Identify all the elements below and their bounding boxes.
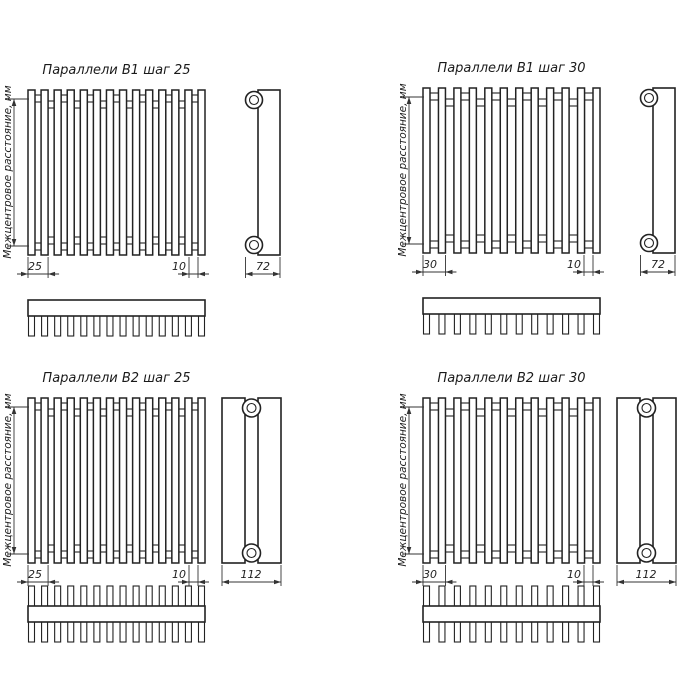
- dim-gap-label: 10: [567, 258, 581, 271]
- radiator-drawing-b1-25: 25 10 72 Межцентровое расстояние, мм: [0, 60, 320, 365]
- radiator-drawing-b2-25: 25 10 112 Межцентровое расстояние, мм: [0, 368, 320, 673]
- panel-parallels-b1-step30: Параллели В1 шаг 30 30 10 72 Межцентрово…: [395, 58, 700, 363]
- panel-parallels-b2-step30: Параллели В2 шаг 30 30 10 112 Межцентров…: [395, 368, 700, 673]
- radiator-drawing-b1-30: 30 10 72 Межцентровое расстояние, мм: [395, 58, 700, 363]
- center-distance-axis-label: Межцентровое расстояние, мм: [397, 393, 409, 566]
- dim-step-label: 30: [423, 258, 437, 271]
- panel-parallels-b2-step25: Параллели В2 шаг 25 25 10 112 Межцентров…: [0, 368, 320, 673]
- radiator-drawing-b2-30: 30 10 112 Межцентровое расстояние, мм: [395, 368, 700, 673]
- dim-depth-label: 112: [241, 568, 262, 581]
- center-distance-axis-label: Межцентровое расстояние, мм: [397, 83, 409, 256]
- dim-gap-label: 10: [172, 260, 186, 273]
- center-distance-axis-label: Межцентровое расстояние, мм: [2, 393, 14, 566]
- dim-depth-label: 72: [651, 258, 665, 271]
- drawing-canvas: Параллели В1 шаг 25 25 10 72 Межцентрово…: [0, 0, 700, 700]
- panel-parallels-b1-step25: Параллели В1 шаг 25 25 10 72 Межцентрово…: [0, 60, 320, 365]
- dim-depth-label: 72: [256, 260, 270, 273]
- dim-step-label: 25: [28, 260, 42, 273]
- dim-gap-label: 10: [567, 568, 581, 581]
- dim-step-label: 25: [28, 568, 42, 581]
- dim-gap-label: 10: [172, 568, 186, 581]
- dim-depth-label: 112: [636, 568, 657, 581]
- dim-step-label: 30: [423, 568, 437, 581]
- center-distance-axis-label: Межцентровое расстояние, мм: [2, 85, 14, 258]
